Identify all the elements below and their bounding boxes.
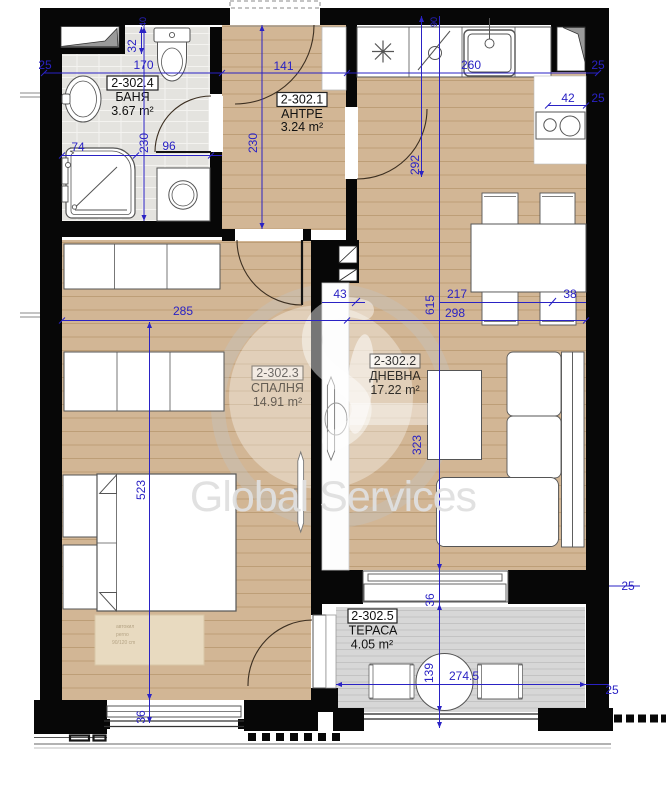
svg-text:96: 96 <box>162 139 176 153</box>
svg-text:3.67 m²: 3.67 m² <box>111 104 153 118</box>
svg-text:38: 38 <box>563 287 577 301</box>
svg-text:260: 260 <box>461 58 481 72</box>
svg-text:90/120 cm: 90/120 cm <box>112 640 135 646</box>
svg-text:Global Services: Global Services <box>190 473 476 521</box>
svg-text:40: 40 <box>138 17 148 27</box>
svg-text:4.05 m²: 4.05 m² <box>351 638 393 652</box>
svg-text:2-302.5: 2-302.5 <box>351 609 393 623</box>
svg-text:523: 523 <box>134 480 148 500</box>
svg-text:36: 36 <box>134 710 148 724</box>
svg-text:274.5: 274.5 <box>449 669 479 683</box>
svg-text:230: 230 <box>137 133 151 153</box>
svg-text:25: 25 <box>591 58 605 72</box>
svg-text:141: 141 <box>273 59 293 73</box>
svg-text:42: 42 <box>561 91 575 105</box>
svg-text:292: 292 <box>408 155 422 175</box>
svg-text:74: 74 <box>71 140 85 154</box>
svg-text:25: 25 <box>591 91 605 105</box>
svg-text:СПАЛНЯ: СПАЛНЯ <box>251 381 304 395</box>
svg-text:25: 25 <box>38 58 52 72</box>
svg-text:perno: perno <box>116 632 129 638</box>
svg-text:170: 170 <box>133 58 153 72</box>
svg-text:3.24 m²: 3.24 m² <box>281 120 323 134</box>
svg-text:БАНЯ: БАНЯ <box>115 90 149 104</box>
svg-text:14.91 m²: 14.91 m² <box>253 395 302 409</box>
svg-text:ДНЕВНА: ДНЕВНА <box>369 369 421 383</box>
svg-text:217: 217 <box>447 287 467 301</box>
svg-text:АНТРЕ: АНТРЕ <box>281 107 323 121</box>
svg-text:2-302.4: 2-302.4 <box>111 76 153 90</box>
svg-text:230: 230 <box>246 133 260 153</box>
svg-text:2-302.2: 2-302.2 <box>374 354 416 368</box>
svg-text:615: 615 <box>423 295 437 315</box>
svg-text:90: 90 <box>429 17 439 27</box>
svg-text:32: 32 <box>125 39 139 53</box>
svg-text:ТЕРАСА: ТЕРАСА <box>349 624 398 638</box>
svg-text:17.22 m²: 17.22 m² <box>370 383 419 397</box>
svg-text:36: 36 <box>423 593 437 607</box>
svg-text:2-302.3: 2-302.3 <box>256 366 298 380</box>
svg-text:323: 323 <box>410 435 424 455</box>
svg-text:298: 298 <box>445 306 465 320</box>
svg-text:139: 139 <box>422 663 436 683</box>
svg-text:43: 43 <box>333 287 347 301</box>
svg-text:285: 285 <box>173 304 193 318</box>
svg-text:автокил: автокил <box>116 624 134 630</box>
svg-text:25: 25 <box>621 579 635 593</box>
svg-text:2-302.1: 2-302.1 <box>281 93 323 107</box>
svg-text:25: 25 <box>605 683 619 697</box>
